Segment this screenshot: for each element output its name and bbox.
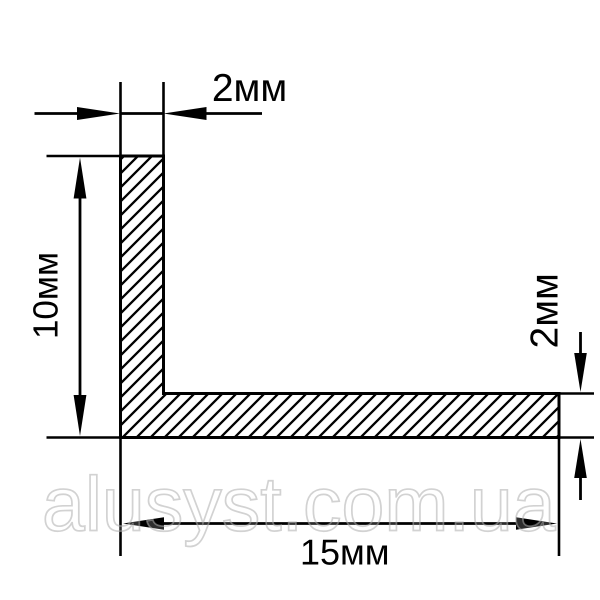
svg-text:10мм: 10мм <box>27 252 66 339</box>
svg-text:2мм: 2мм <box>524 273 567 348</box>
svg-text:alusyst.com.ua: alusyst.com.ua <box>42 462 556 548</box>
svg-text:2мм: 2мм <box>212 67 287 110</box>
